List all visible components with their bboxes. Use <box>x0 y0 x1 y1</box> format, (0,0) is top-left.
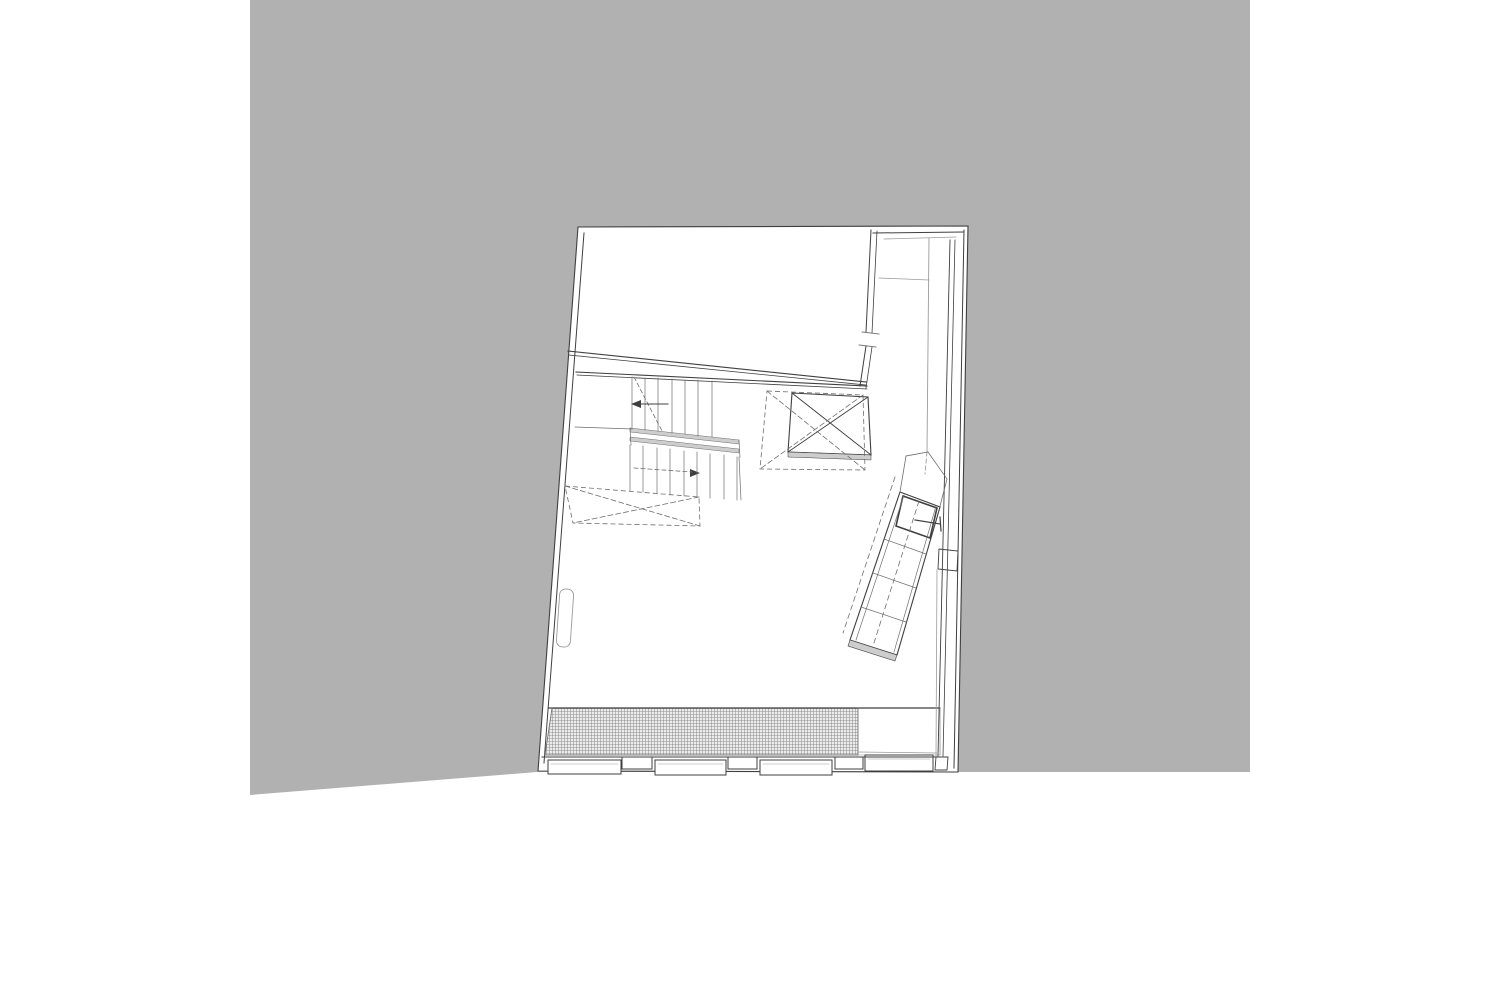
window-sill-3 <box>760 760 832 775</box>
window-pier-3 <box>835 757 863 769</box>
floor-plan-drawing <box>0 0 1500 1001</box>
window-pier-1 <box>622 757 652 769</box>
window-pier-2 <box>728 757 757 769</box>
page <box>0 0 1500 1001</box>
grate-hatch-strip <box>545 708 858 755</box>
window-sill-2 <box>655 760 726 775</box>
entry-mat-strip <box>858 708 940 755</box>
bottom-right-corner-pier <box>935 757 948 770</box>
window-sill-1 <box>548 760 621 774</box>
